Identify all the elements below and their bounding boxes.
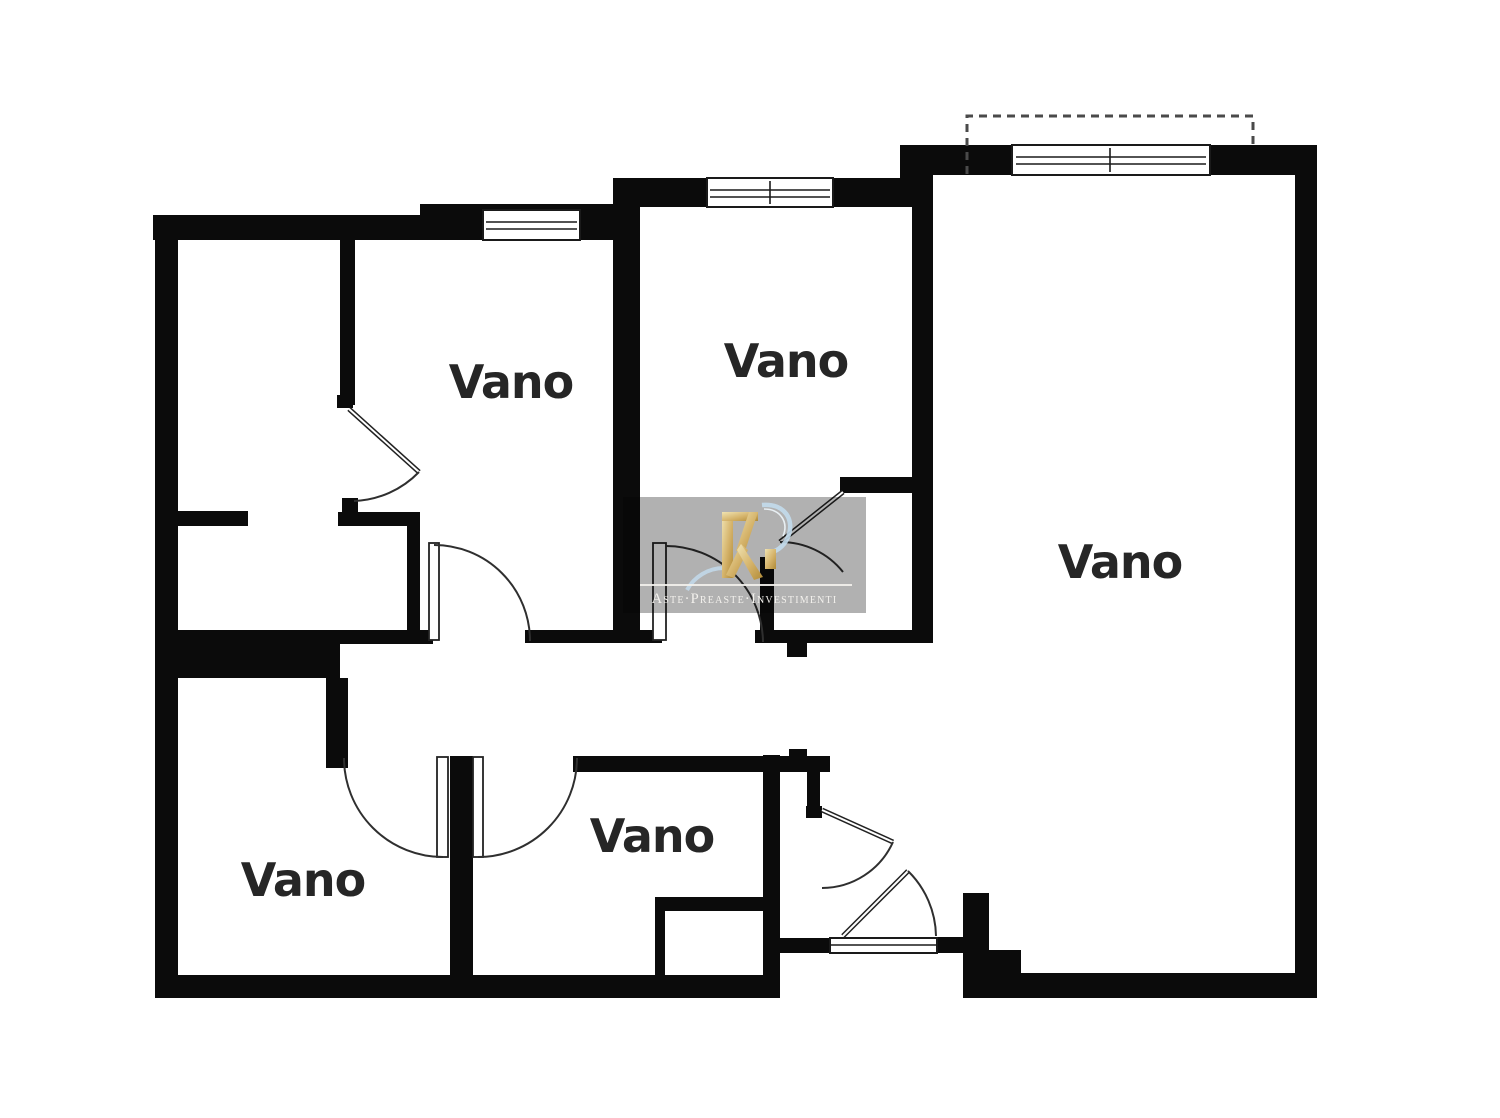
window-top-right <box>1012 145 1210 175</box>
wall-segment <box>525 630 662 643</box>
wall-segment <box>326 678 348 768</box>
wall-segment <box>655 897 765 911</box>
watermark-divider <box>640 584 852 586</box>
wall-segment <box>807 772 820 810</box>
wall-segment <box>178 630 340 678</box>
window-top-left <box>483 210 580 240</box>
door-room-bottom-middle <box>473 757 577 857</box>
room-label-top-middle: Vano <box>724 334 848 388</box>
room-label-right: Vano <box>1058 535 1182 589</box>
wall-segment <box>787 643 807 657</box>
watermark: Aste·Preaste·Investimenti <box>623 497 866 613</box>
wall-segment <box>407 512 420 643</box>
wall-segment <box>1295 145 1317 998</box>
door-hinge-block <box>337 395 353 408</box>
ri-monogram-icon <box>722 512 776 580</box>
door-room-top-left <box>429 543 530 641</box>
wall-segment <box>777 938 830 953</box>
room-label-bottom-left: Vano <box>241 853 365 907</box>
wall-segment <box>937 937 967 953</box>
door-narrow-room <box>349 409 419 501</box>
door-room-bottom-left <box>344 757 448 857</box>
wall-segment <box>338 630 433 644</box>
wall-segment <box>912 175 933 643</box>
wall-segment <box>155 975 780 998</box>
wall-segment <box>1018 973 1317 998</box>
room-labels: Vano Vano Vano Vano Vano <box>241 334 1182 907</box>
room-label-bottom-middle: Vano <box>590 809 714 863</box>
window-top-middle <box>707 178 833 207</box>
wall-segment <box>763 755 780 998</box>
wall-segment <box>789 749 807 758</box>
door-hinge-block <box>806 806 822 818</box>
wall-segment <box>178 511 248 526</box>
watermark-brand-text: Aste·Preaste·Investimenti <box>623 591 866 608</box>
room-label-top-left: Vano <box>449 355 573 409</box>
wall-segment <box>573 756 830 772</box>
wall-segment <box>755 630 930 643</box>
wall-segment <box>655 911 665 980</box>
wall-segment <box>155 215 178 998</box>
wall-segment <box>450 756 473 978</box>
floor-plan-page: Vano Vano Vano Vano Vano <box>0 0 1500 1118</box>
entrance-door <box>822 810 937 953</box>
wall-segment <box>340 238 355 405</box>
